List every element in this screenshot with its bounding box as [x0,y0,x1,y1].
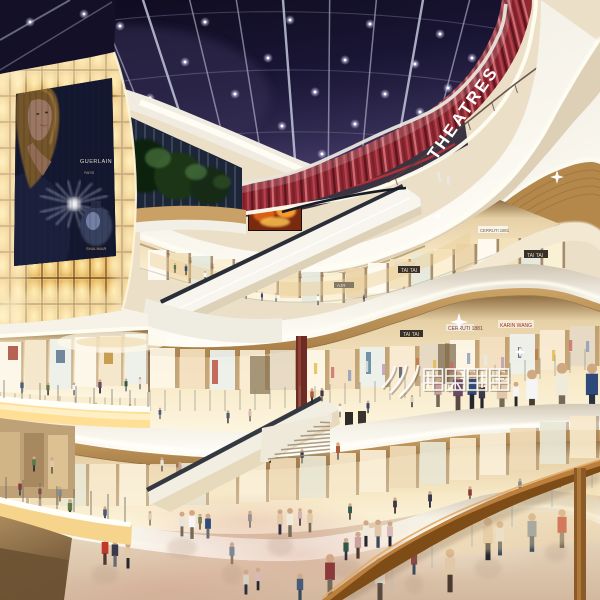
svg-text:TAI TAI: TAI TAI [401,268,417,274]
svg-text:TAI TAI: TAI TAI [403,332,419,338]
svg-text:CERRUTI 1881: CERRUTI 1881 [480,228,510,233]
svg-text:TAI TAI: TAI TAI [527,253,543,259]
svg-text:KARIN WANG: KARIN WANG [500,323,532,329]
svg-text:CERRUTI 1881: CERRUTI 1881 [448,326,483,332]
svg-text:PARIS: PARIS [84,171,95,175]
